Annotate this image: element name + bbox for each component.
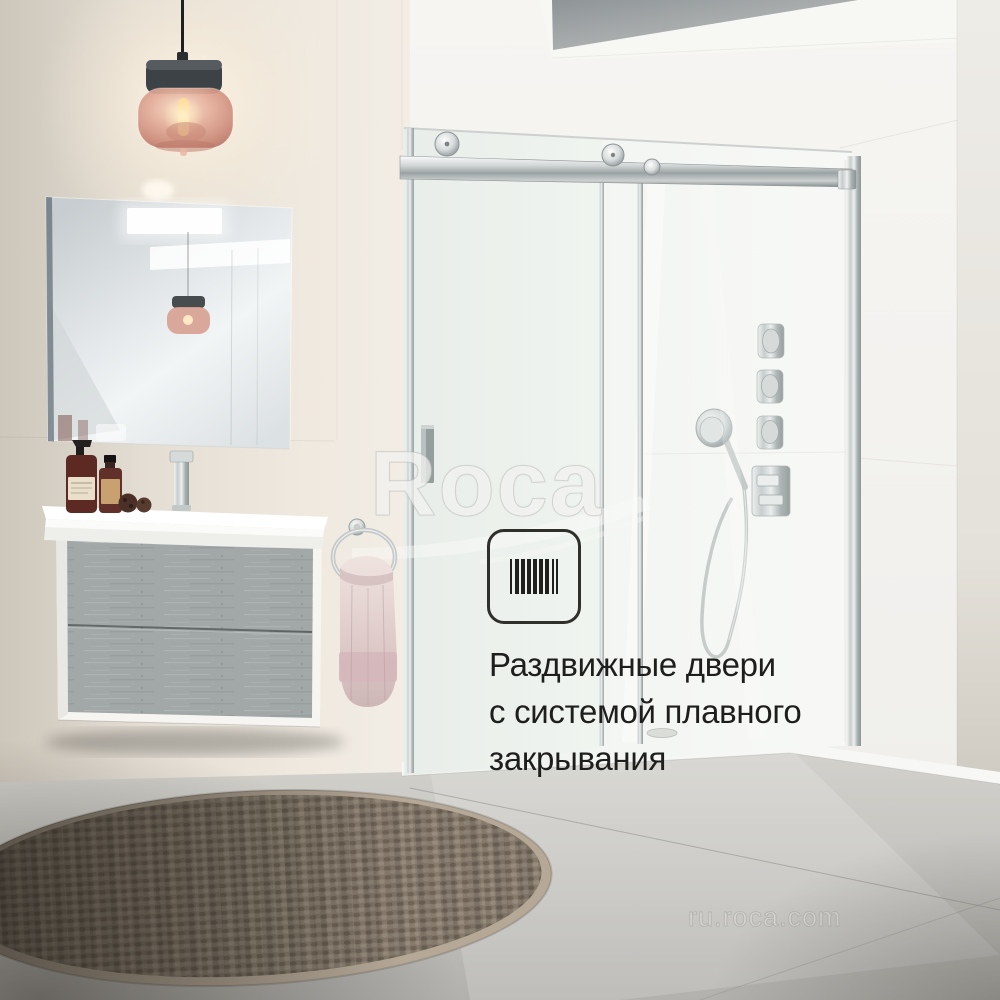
website-watermark: ru.roca.com <box>688 901 842 933</box>
barcode-soft-close-icon <box>487 529 581 624</box>
mirror <box>46 197 292 449</box>
caption-line-1: Раздвижные двери <box>489 641 801 688</box>
pinecone <box>137 498 152 513</box>
pinecone <box>119 494 138 513</box>
caption: Раздвижные двери с системой плавного зак… <box>489 641 801 782</box>
bathroom-scene: Roca Раздвижные двери с системой плавног… <box>0 0 1000 1000</box>
towel <box>339 556 397 707</box>
roller-wheel <box>644 159 660 175</box>
roca-watermark: Roca <box>370 438 603 530</box>
vanity-drawers <box>67 530 313 718</box>
glass-right-post <box>847 156 861 746</box>
ceiling-light-spot <box>142 180 174 200</box>
caption-line-2: с системой плавного <box>489 688 801 735</box>
vanity-shadow <box>45 729 345 755</box>
barcode-bars <box>510 559 558 594</box>
far-right-wall <box>957 0 1000 790</box>
caption-line-3: закрывания <box>489 735 801 782</box>
